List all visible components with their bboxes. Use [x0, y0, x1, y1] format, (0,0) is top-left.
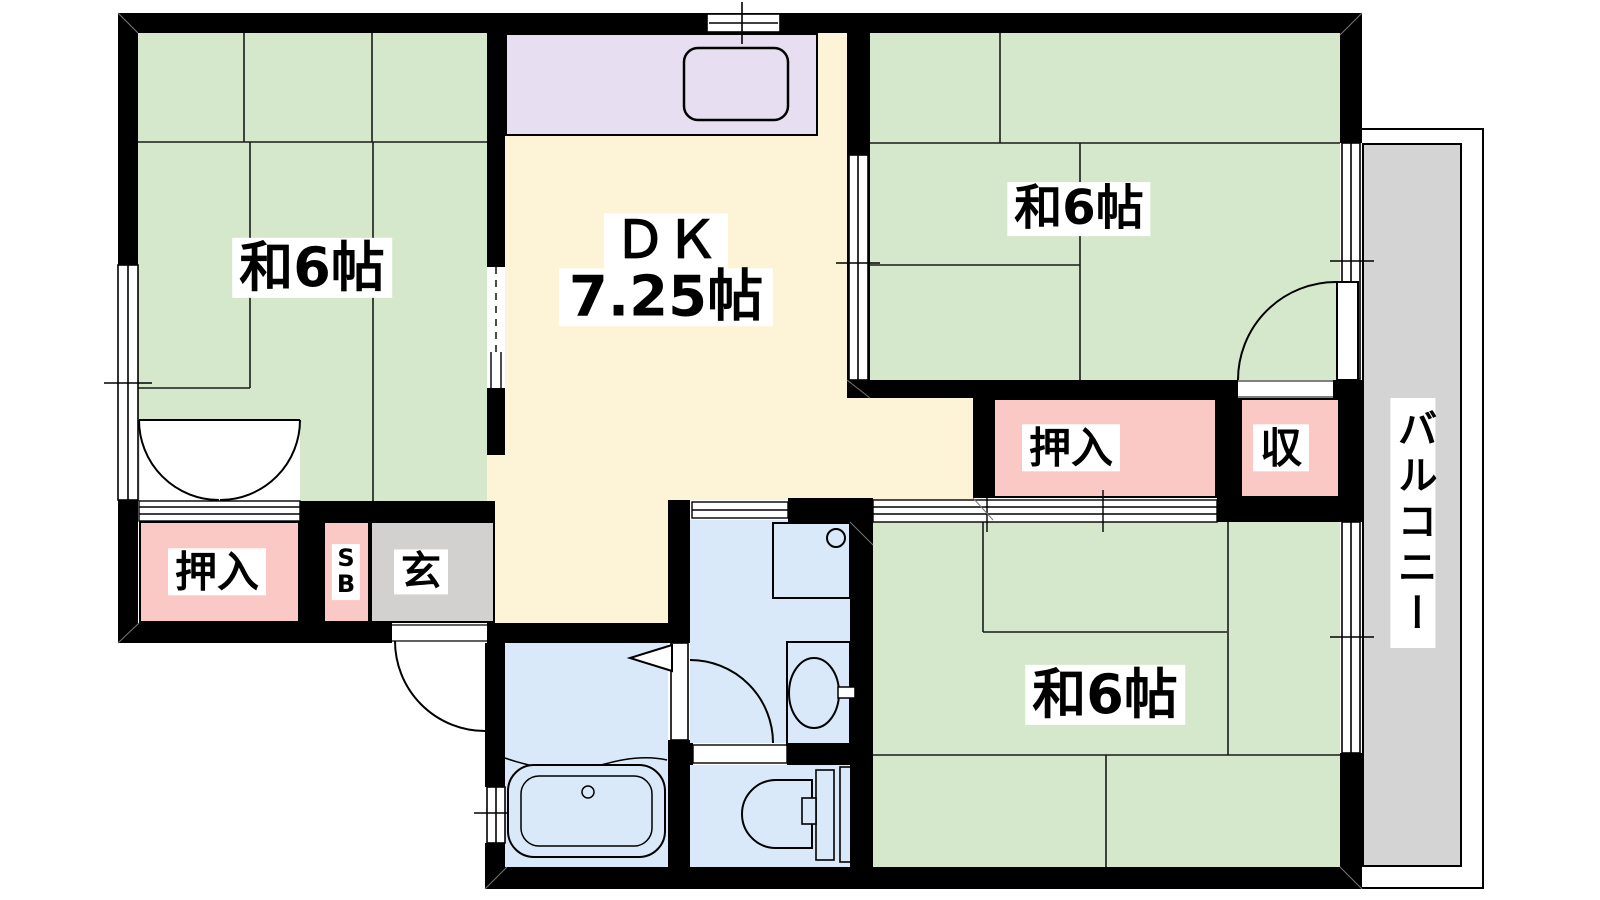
- toilet-room: [690, 765, 853, 867]
- label-entrance: 玄: [394, 549, 448, 594]
- wall: [485, 643, 505, 787]
- wall: [118, 13, 1362, 33]
- wall: [850, 522, 873, 867]
- label-closet-bottom-left: 押入: [168, 548, 266, 595]
- opening-storage: [1238, 381, 1333, 397]
- wall: [118, 623, 392, 643]
- label-balcony: バルコニー: [1390, 398, 1435, 648]
- dk-hall-lower: [505, 500, 668, 623]
- wall: [300, 501, 323, 623]
- wall: [1333, 380, 1362, 398]
- label-dk: ＤＫ 7.25帖: [559, 213, 773, 326]
- label-room-top-right: 和6帖: [1007, 182, 1150, 236]
- wall: [485, 843, 505, 867]
- label-shoe-box-line1: S: [337, 546, 355, 572]
- label-room-bottom-right: 和6帖: [1025, 665, 1185, 725]
- wall: [1340, 13, 1362, 143]
- door-entrance: [392, 625, 487, 731]
- label-shoe-box-line2: B: [337, 572, 355, 598]
- opening-room1-dk: [489, 267, 503, 388]
- wall: [973, 398, 993, 498]
- label-room-top-left: 和6帖: [232, 238, 392, 298]
- kitchen-counter: [505, 33, 818, 136]
- label-dk-line1: ＤＫ: [604, 213, 728, 268]
- label-shoe-box: S B: [332, 544, 360, 600]
- wall: [787, 743, 853, 765]
- wall: [118, 13, 138, 265]
- label-dk-line2: 7.25帖: [559, 268, 773, 327]
- wall: [847, 13, 870, 398]
- sliding-door-washroom-entry: [692, 502, 788, 518]
- bathroom: [505, 643, 668, 867]
- fusuma-track-closet-bl: [139, 501, 300, 521]
- wall: [487, 388, 505, 455]
- wall: [487, 623, 690, 643]
- wall: [1340, 398, 1362, 522]
- wall: [485, 867, 1362, 889]
- dk-strip-right-of-kitchen: [818, 33, 847, 136]
- label-closet-mid-right: 押入: [1022, 424, 1120, 471]
- wall: [323, 501, 495, 521]
- toilet-door: [693, 745, 787, 763]
- floor-plan: 和6帖 和6帖 和6帖 ＤＫ 7.25帖 押入 押入 収 玄 S B バルコニー: [0, 0, 1600, 900]
- wall: [668, 500, 690, 643]
- wall: [847, 380, 1238, 398]
- wall: [668, 743, 693, 765]
- washroom: [690, 520, 853, 743]
- label-storage: 収: [1253, 424, 1309, 471]
- wall: [788, 498, 873, 522]
- wall: [487, 33, 505, 267]
- dk-corridor: [847, 398, 973, 502]
- wall: [118, 500, 138, 643]
